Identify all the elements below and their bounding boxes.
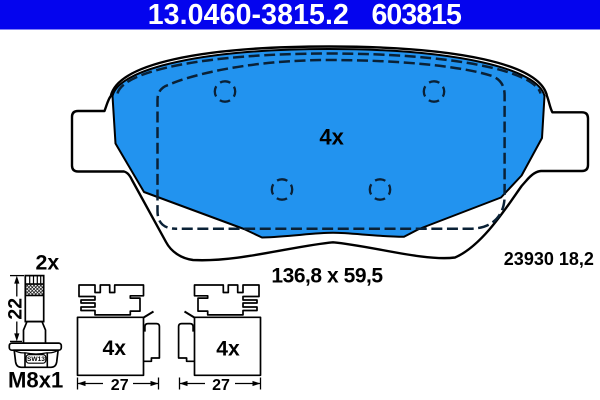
svg-text:603815: 603815: [372, 0, 463, 31]
svg-text:27: 27: [212, 377, 230, 394]
svg-text:4x: 4x: [103, 337, 127, 360]
svg-text:23930 18,2: 23930 18,2: [504, 249, 594, 269]
svg-text:SW13: SW13: [27, 356, 45, 363]
svg-text:136,8 x 59,5: 136,8 x 59,5: [271, 265, 383, 288]
svg-text:22: 22: [4, 298, 26, 320]
svg-text:M8x1: M8x1: [8, 367, 63, 392]
svg-text:13.0460-3815.2: 13.0460-3815.2: [148, 0, 349, 31]
svg-text:4x: 4x: [216, 338, 240, 361]
svg-text:2x: 2x: [36, 250, 60, 274]
svg-text:27: 27: [111, 377, 129, 394]
svg-text:4x: 4x: [319, 124, 344, 149]
